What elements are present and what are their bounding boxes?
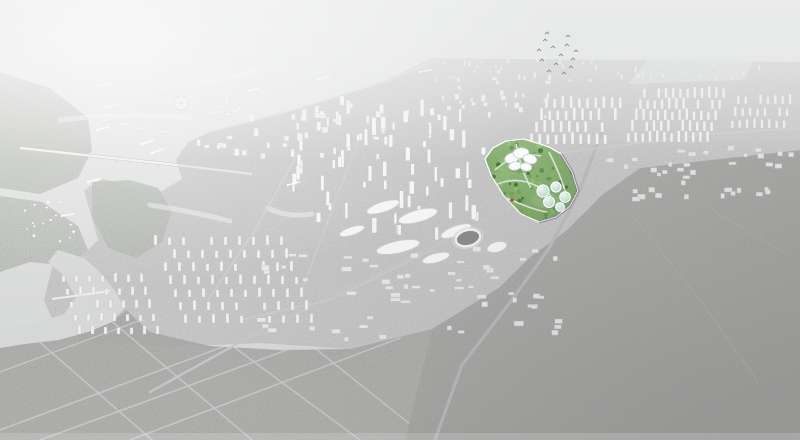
aerial-masterplan-rendering: [0, 0, 800, 440]
masterplan-render-stage: [0, 0, 800, 440]
corner-shade: [0, 0, 800, 440]
bottom-fade: [0, 433, 800, 440]
